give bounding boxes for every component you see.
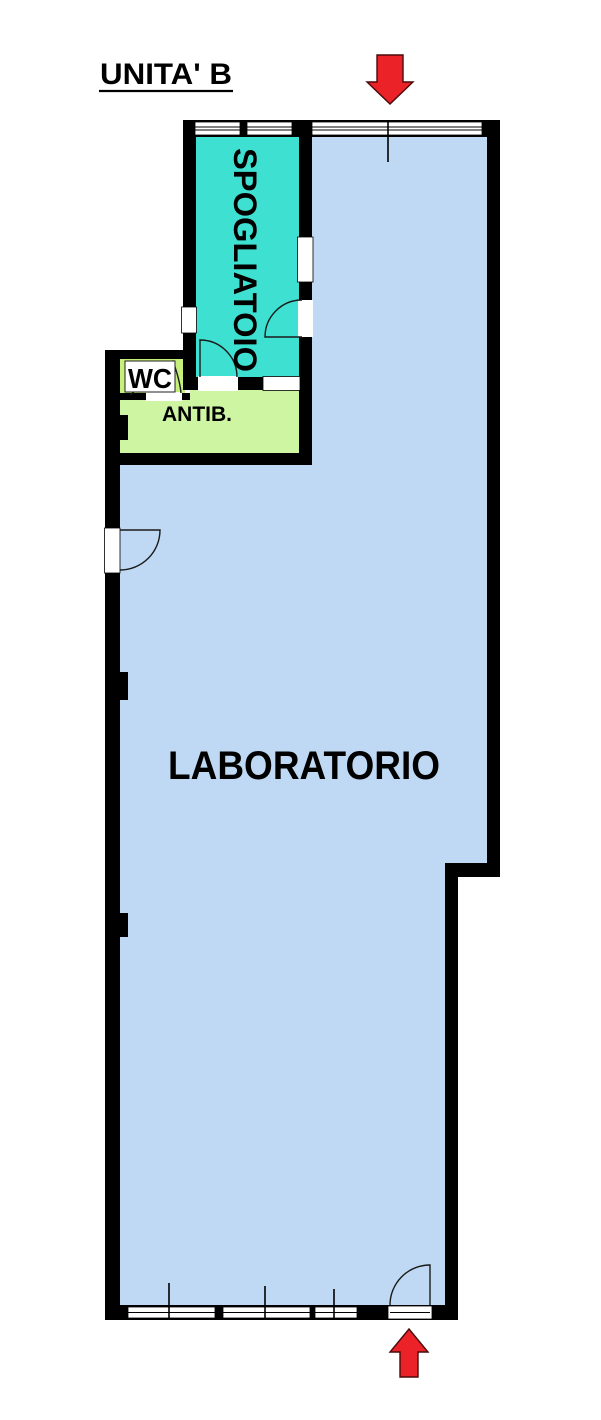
room-label-laboratorio: LABORATORIO [168, 744, 440, 788]
wall-spogliatoio-right [299, 120, 312, 465]
window-spogliatoio-right [298, 237, 314, 282]
wall-right-lower [445, 877, 458, 1320]
door-gap-spogliatoio-right [298, 300, 313, 337]
wall-left [105, 350, 120, 1320]
wall-spogliatoio-left [183, 120, 196, 390]
window-top-3 [312, 122, 482, 135]
room-label-spogliatoio: SPOGLIATOIO [227, 148, 263, 372]
wall-antib-bottom [105, 453, 312, 465]
wall-pilaster-2 [117, 672, 128, 700]
floor-plan-page: UNITA' B SPOGLIATOIO WC ANTIB. LABORATOR… [0, 0, 601, 1420]
page-title: UNITA' B [100, 58, 232, 91]
wall-step [445, 863, 500, 877]
door-gap-spogliatoio-bottom [198, 376, 238, 391]
window-spogliatoio-left [182, 307, 197, 333]
wall-right-upper [487, 120, 500, 877]
room-label-antib: ANTIB. [162, 403, 232, 426]
window-top-2 [247, 122, 292, 135]
room-label-wc: WC [128, 363, 172, 394]
floor-plan: UNITA' B SPOGLIATOIO WC ANTIB. LABORATOR… [0, 0, 601, 1420]
window-top-1 [195, 122, 240, 135]
wall-pilaster-3 [117, 913, 128, 937]
wall-pilaster-1 [117, 415, 128, 440]
door-gap-laboratorio-left [105, 528, 121, 573]
window-spogliatoio-antib [263, 377, 300, 391]
